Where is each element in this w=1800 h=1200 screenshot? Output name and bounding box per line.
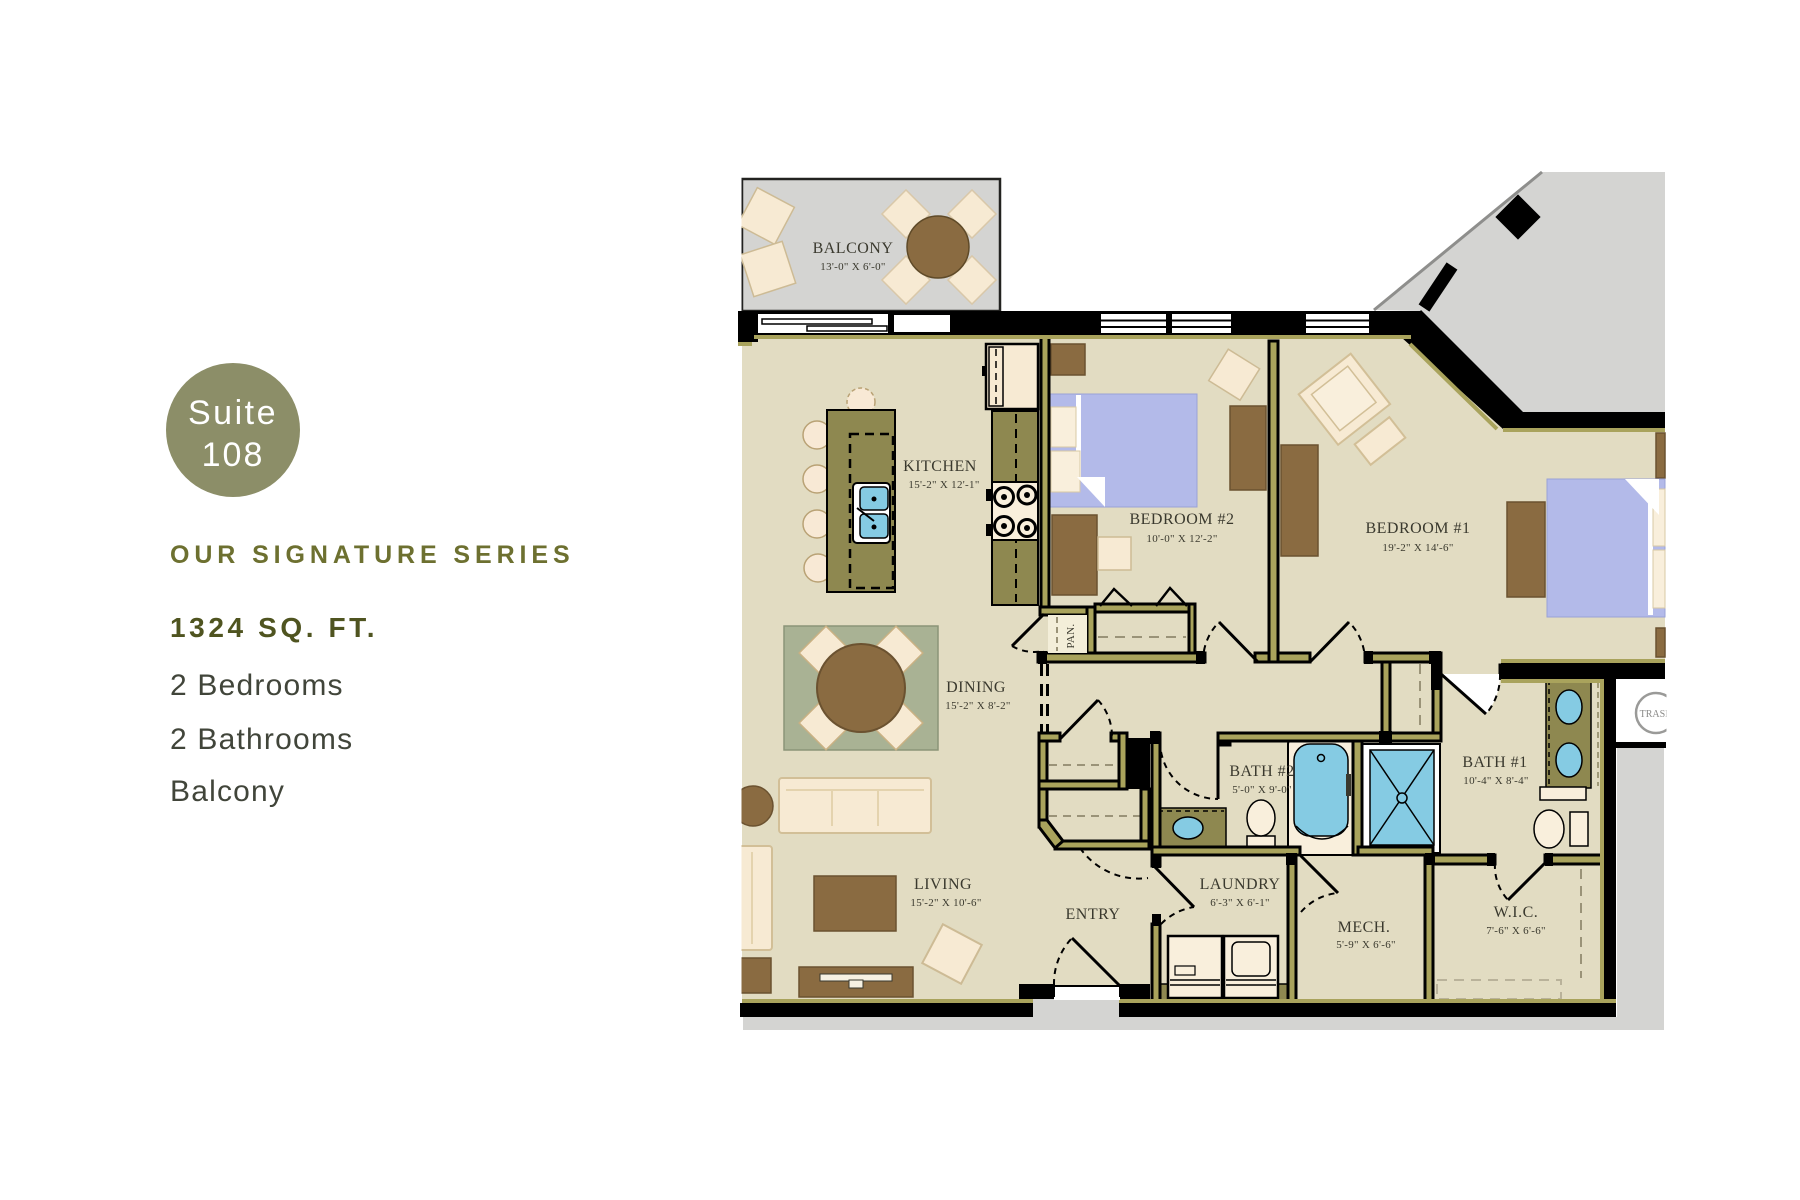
svg-text:LAUNDRY: LAUNDRY <box>1200 876 1281 893</box>
svg-text:BEDROOM #1: BEDROOM #1 <box>1365 520 1470 537</box>
svg-text:BALCONY: BALCONY <box>813 240 894 257</box>
svg-text:KITCHEN: KITCHEN <box>903 458 977 475</box>
svg-text:5'-9" X 6'-6": 5'-9" X 6'-6" <box>1336 939 1396 951</box>
svg-text:7'-6" X 6'-6": 7'-6" X 6'-6" <box>1486 925 1546 937</box>
svg-text:Suite: Suite <box>188 394 278 432</box>
svg-text:15'-2" X 8'-2": 15'-2" X 8'-2" <box>945 700 1010 712</box>
svg-text:108: 108 <box>202 436 265 474</box>
svg-text:15'-2" X 10'-6": 15'-2" X 10'-6" <box>910 897 981 909</box>
svg-text:BATH #1: BATH #1 <box>1462 754 1527 771</box>
svg-text:5'-0" X 9'-0": 5'-0" X 9'-0" <box>1232 784 1292 796</box>
svg-text:W.I.C.: W.I.C. <box>1494 904 1539 921</box>
svg-text:10'-4" X 8'-4": 10'-4" X 8'-4" <box>1463 775 1528 787</box>
svg-text:LIVING: LIVING <box>914 876 972 893</box>
svg-text:BATH #2: BATH #2 <box>1229 763 1294 780</box>
svg-text:2 Bedrooms: 2 Bedrooms <box>170 669 344 702</box>
svg-text:BEDROOM #2: BEDROOM #2 <box>1129 511 1234 528</box>
svg-text:10'-0" X 12'-2": 10'-0" X 12'-2" <box>1146 533 1217 545</box>
svg-text:Balcony: Balcony <box>170 775 285 808</box>
svg-text:OUR SIGNATURE SERIES: OUR SIGNATURE SERIES <box>170 541 575 569</box>
svg-text:MECH.: MECH. <box>1338 919 1391 936</box>
svg-text:6'-3" X 6'-1": 6'-3" X 6'-1" <box>1210 897 1270 909</box>
svg-text:2 Bathrooms: 2 Bathrooms <box>170 723 353 756</box>
svg-text:PAN.: PAN. <box>1065 624 1077 649</box>
svg-text:15'-2" X 12'-1": 15'-2" X 12'-1" <box>908 479 979 491</box>
svg-text:13'-0" X 6'-0": 13'-0" X 6'-0" <box>820 261 885 273</box>
svg-text:19'-2" X 14'-6": 19'-2" X 14'-6" <box>1382 542 1453 554</box>
svg-text:DINING: DINING <box>946 679 1006 696</box>
svg-text:ENTRY: ENTRY <box>1066 906 1121 923</box>
svg-text:1324 SQ. FT.: 1324 SQ. FT. <box>170 612 378 643</box>
